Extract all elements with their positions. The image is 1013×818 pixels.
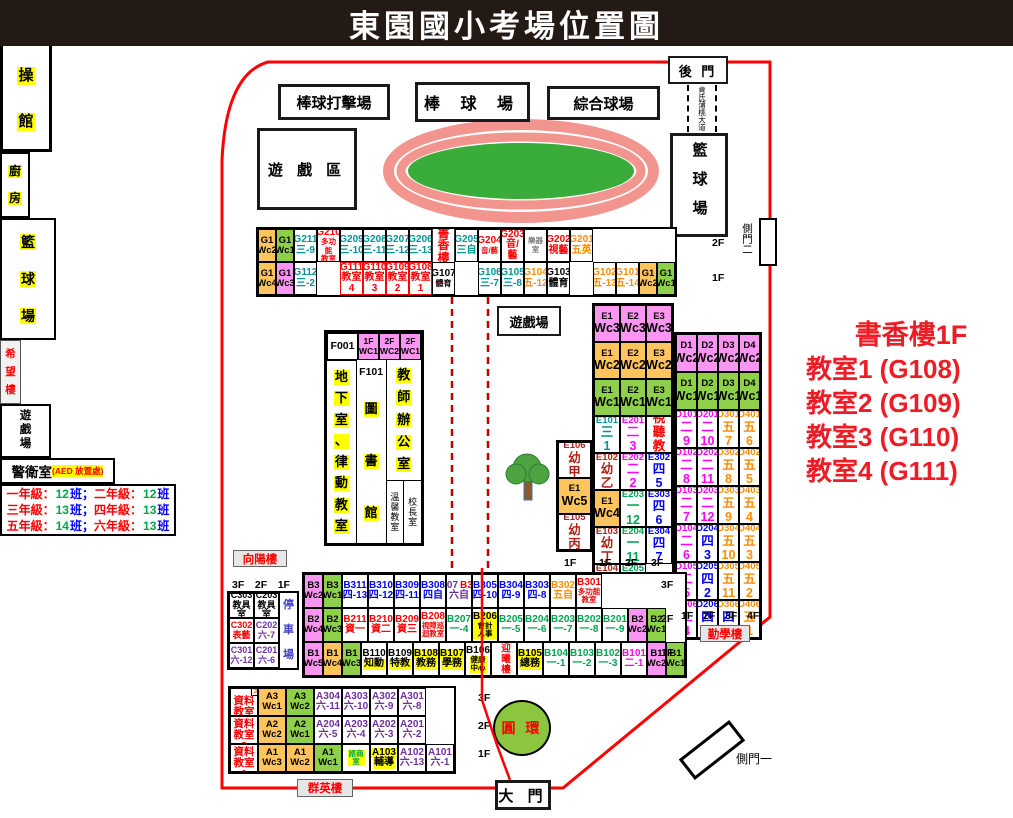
room-d403: D403五 4 xyxy=(739,486,760,524)
room-d302: D302五 8 xyxy=(718,448,739,486)
room-g201: G201五英 xyxy=(570,229,593,262)
guard-room-label: 警衛室 xyxy=(12,461,53,481)
room-d1: D1Wc2 xyxy=(676,334,697,372)
qunying-building-label: 群英樓 xyxy=(297,779,353,797)
room-b108: B108教務 xyxy=(413,642,439,676)
room-b202: B202一-8 xyxy=(576,608,602,642)
room-g211: G211三-9 xyxy=(294,229,317,262)
room-d2: D2Wc1 xyxy=(697,372,718,410)
room-a201: A201六-2 xyxy=(398,716,426,744)
room-g208: G208三-11 xyxy=(363,229,386,262)
room-e201: E201二 3 xyxy=(620,416,646,453)
b-building-2f-row: B2Wc4B2Wc3B211資一B210資二B209資三B208視障巡 迴教室B… xyxy=(304,608,685,642)
d-floor-3f: 3F xyxy=(725,610,737,622)
room-g209: G209三-10 xyxy=(340,229,363,262)
running-track xyxy=(389,125,653,217)
room-e2: E2Wc3 xyxy=(620,305,646,342)
c-floor-2f: 2F xyxy=(255,579,267,591)
hope-building-label: 希望樓 xyxy=(0,340,21,404)
room-a104: A104資料教室 1 xyxy=(230,744,258,772)
room-a302: A302六-9 xyxy=(370,688,398,716)
cell xyxy=(455,262,478,295)
room-a1: A1Wc1 xyxy=(314,744,342,772)
room-b2: B2Wc4 xyxy=(304,608,323,642)
room-g206: G206三-13 xyxy=(409,229,432,262)
e-floor-3f: 3F xyxy=(651,557,663,569)
c-row: C301六-12C201六-6 xyxy=(229,643,279,668)
room-b303: B303四-8 xyxy=(524,574,550,608)
room-d4: D4Wc1 xyxy=(739,372,760,410)
a-building-3f-row: A305六英資料教室 3A3Wc1A3Wc2A304六-11A303六-10A3… xyxy=(230,688,454,716)
side-gate-2 xyxy=(759,218,777,266)
room-c202: C202六-7 xyxy=(254,618,279,643)
cell xyxy=(317,262,340,295)
room-a102: A102六-13 xyxy=(398,744,426,772)
d-floor-4f: 4F xyxy=(747,610,759,622)
roundabout: 圓 環 xyxy=(493,700,551,756)
kitchen: 廚房 xyxy=(0,152,30,218)
f-wc-2f-wc1: 2F WC1 xyxy=(400,333,421,360)
room-a304: A304六-11 xyxy=(314,688,342,716)
cell xyxy=(593,229,616,262)
room-c301: C301六-12 xyxy=(229,643,254,668)
room-b310: B310四-12 xyxy=(368,574,394,608)
room-e203: E203一 12 xyxy=(620,490,646,527)
room-a202: A202六-3 xyxy=(370,716,398,744)
room-c303: C303教具 室 xyxy=(229,593,254,618)
e-building-west-wing: E106幼 甲E1Wc5E105幼 丙 xyxy=(556,440,593,552)
batting-field: 棒球打擊場 xyxy=(278,84,390,120)
exam-room-legend: 書香樓1F 教室1 (G108) 教室2 (G109) 教室3 (G110) 教… xyxy=(806,318,1013,488)
back-gate: 後 門 xyxy=(668,56,728,84)
a-floor-1f: 1F xyxy=(478,748,490,760)
room-e1: E1Wc1 xyxy=(594,379,620,416)
side-gate-2-label: 側門二 xyxy=(740,223,755,255)
room-e101: E101三 1 xyxy=(594,416,620,453)
room-b1: B1Wc4 xyxy=(323,642,342,676)
room-b2: B2Wc3 xyxy=(323,608,342,642)
cell xyxy=(602,574,628,608)
side-gate-1-label: 側門一 xyxy=(736,750,772,767)
room-b107: B107學務 xyxy=(439,642,465,676)
d-building-col-d4: D4Wc2D4Wc1D401五 6D402五 5D403五 4D404五 3D4… xyxy=(739,334,760,638)
room-g101: G101五-14 xyxy=(616,262,639,295)
principal-office: 校長室 xyxy=(403,481,421,543)
legend-line: 書香樓1F xyxy=(806,318,1013,352)
room-b102: B102一-3 xyxy=(595,642,621,676)
room-a3: A3Wc2 xyxy=(286,688,314,716)
room-b208: B208視障巡 迴教室 xyxy=(420,608,446,642)
xiangyang-building-label: 向陽樓 xyxy=(233,550,287,567)
room-e3: E3Wc2 xyxy=(646,342,672,379)
room-d102: D102二 8 xyxy=(676,448,697,486)
room-e303: E303四 6 xyxy=(646,490,672,527)
legend-line: 教室1 (G108) xyxy=(806,352,1013,386)
room-b3: B3Wc1 xyxy=(323,574,342,608)
a-building-2f-row: A205資料教室 2A2Wc2A2Wc1A204六-5A203六-4A202六-… xyxy=(230,716,454,744)
exit-arrow-icon: ← xyxy=(434,272,451,289)
b-floor-1f: 1F xyxy=(661,647,673,659)
class-count-line: 三年級：13班；四年級：13班 xyxy=(7,503,170,517)
playfield-bottom: 遊戲場 xyxy=(0,404,51,458)
room-b201: B201一-9 xyxy=(602,608,628,642)
room-e301: E301視 聽 教 室 xyxy=(646,416,672,453)
room-g112: G112三-2 xyxy=(294,262,317,295)
room-d303: D303五 9 xyxy=(718,486,739,524)
room-g202: G202視藝 xyxy=(547,229,570,262)
room-d401: D401五 6 xyxy=(739,410,760,448)
room-d203: D203二 12 xyxy=(697,486,718,524)
d-building-col-d3: D3Wc2D3Wc1D301五 7D302五 8D303五 9D304五 10D… xyxy=(718,334,739,638)
room-d3: D3Wc1 xyxy=(718,372,739,410)
room-g108: G108教室1 xyxy=(409,262,432,295)
basement-rhythm-room: 地下室、律動教室 xyxy=(327,360,357,543)
yingxi-label: 迎曦樓 xyxy=(491,642,517,676)
room-a103: A103輔導 xyxy=(370,744,398,772)
room-b203: B203一-7 xyxy=(550,608,576,642)
room-e102: E102幼 乙 xyxy=(594,453,620,490)
room-b3: B3Wc2 xyxy=(304,574,323,608)
room-g1: G1Wc2 xyxy=(639,262,657,295)
e-floor-1f-west: 1F xyxy=(564,557,576,569)
room-c302: C302表藝 xyxy=(229,618,254,643)
c-building-floor-header: 3F 2F 1F xyxy=(227,579,295,591)
e-floor-1f: 1F xyxy=(599,557,611,569)
play-area: 遊 戲 區 xyxy=(257,128,357,210)
f-wc-2f-wc2: 2F WC2 xyxy=(379,333,400,360)
room-b301: B301多功能 教室 xyxy=(576,574,602,608)
room-e105: E105幼 丙 xyxy=(558,514,591,550)
room-g105: G105三-8 xyxy=(501,262,524,295)
e-floor-2f: 2F xyxy=(625,557,637,569)
room-b304: B304四-9 xyxy=(498,574,524,608)
b-building: B3Wc2B3Wc1B311四-13B310四-12B309四-11B308四自… xyxy=(302,572,687,678)
room-d3: D3Wc2 xyxy=(718,334,739,372)
c-row: C303教具 室C203教具 室 xyxy=(229,593,279,618)
g-floor-2f: 2F xyxy=(712,237,724,249)
d-floor-1f: 1F xyxy=(681,610,693,622)
room-b207: B207一-4 xyxy=(446,608,472,642)
room-b206: B206會計人事 xyxy=(472,608,498,642)
playfield-top: 遊戲場 xyxy=(497,306,561,336)
room-d205: D205四 2 xyxy=(697,562,718,600)
room-a303: A303六-10 xyxy=(342,688,370,716)
room-a101: A101六-1 xyxy=(426,744,454,772)
room-a203: A203六-4 xyxy=(342,716,370,744)
room-c203: C203教具 室 xyxy=(254,593,279,618)
room-b103: B103一-2 xyxy=(569,642,595,676)
g-building-1f-row: G1Wc4G1Wc3G112三-2G111教室4G110教室3G109教室2G1… xyxy=(258,262,675,295)
room-e1: E1Wc5 xyxy=(558,478,591,514)
room-e1: E1Wc2 xyxy=(594,342,620,379)
b-floor-3f: 3F xyxy=(661,579,673,591)
room-g205: G205三自 xyxy=(455,229,478,262)
room-g204: G204音/藝 xyxy=(478,229,501,262)
room-g210: G210多功能 教室 xyxy=(317,229,340,262)
room-e3: E3Wc3 xyxy=(646,305,672,342)
room-g1: G1Wc4 xyxy=(258,262,276,295)
room-b110: B110知動 xyxy=(361,642,387,676)
room-g1: G1Wc2 xyxy=(258,229,276,262)
room-b204: B204一-6 xyxy=(524,608,550,642)
room-d204: D204四 3 xyxy=(697,524,718,562)
c-row: C302表藝C202六-7 xyxy=(229,618,279,643)
room-g107: G107體育← xyxy=(432,262,455,295)
aed-location-note: (AED 放置處) xyxy=(52,465,103,477)
room-b309: B309四-11 xyxy=(394,574,420,608)
room-b305: B305四-10 xyxy=(472,574,498,608)
room-b101: B101二-1 xyxy=(621,642,647,676)
g-floor-1f: 1F xyxy=(712,272,724,284)
class-count-line: 五年級：14班；六年級：13班 xyxy=(7,519,170,533)
a-floor-3f: 3F xyxy=(478,692,490,704)
room-b109: B109特教 xyxy=(387,642,413,676)
a-building: A305六英資料教室 3A3Wc1A3Wc2A304六-11A303六-10A3… xyxy=(228,686,456,774)
qinxue-building-label: 勤學樓 xyxy=(700,625,750,642)
f-building-top-row: F001 1F WC1 2F WC2 2F WC1 xyxy=(327,333,421,360)
a-floor-2f: 2F xyxy=(478,720,490,732)
room-g109: G109教室2 xyxy=(386,262,409,295)
room-d304: D304五 10 xyxy=(718,524,739,562)
room-g102: G102五-13 xyxy=(593,262,616,295)
room-a305: A305六英資料教室 3 xyxy=(230,688,258,716)
shuxiang-label: 書香樓 xyxy=(432,229,455,262)
tree-avenue: 肯氏蒲桃大道 xyxy=(687,85,717,132)
room-b1: B1Wc5 xyxy=(304,642,323,676)
room-d2: D2Wc2 xyxy=(697,334,718,372)
room-b2: B2Wc2 xyxy=(628,608,647,642)
main-gate: 大 門 xyxy=(495,780,551,810)
room-d405: D405五 2 xyxy=(739,562,760,600)
c-building: C303教具 室C203教具 室 C302表藝C202六-7 C301六-12C… xyxy=(227,591,299,670)
parking-lot-label: 停車場 xyxy=(279,593,297,668)
basketball-court-ne: 籃球場 xyxy=(670,133,728,237)
page-title: 東園國小考場位置圖 xyxy=(0,0,1013,46)
room-e1: E1Wc4 xyxy=(594,490,620,527)
room-d104: D104二 6 xyxy=(676,524,697,562)
room-a301: A301六-8 xyxy=(398,688,426,716)
room-g103: G103體育 xyxy=(547,262,570,295)
f-building: F001 1F WC1 2F WC2 2F WC1 地下室、律動教室 F101 … xyxy=(324,330,424,546)
room-a204: A204六-5 xyxy=(314,716,342,744)
room-d101: D101二 9 xyxy=(676,410,697,448)
room-b105: B105總務 xyxy=(517,642,543,676)
room-d202: D202二 11 xyxy=(697,448,718,486)
class-count-legend: 一年級：12班；二年級：12班三年級：13班；四年級：13班五年級：14班；六年… xyxy=(0,484,176,536)
room-d404: D404五 3 xyxy=(739,524,760,562)
room-e302: E302四 5 xyxy=(646,453,672,490)
room-a2: A2Wc1 xyxy=(286,716,314,744)
room-b307: B307B306六自 xyxy=(446,574,472,608)
room-b205: B205一-5 xyxy=(498,608,524,642)
basketball-court-mid: 籃球場 xyxy=(0,218,56,340)
b-building-1f-row: B1Wc5B1Wc4B1Wc3B110知動B109特教B108教務B107學務B… xyxy=(304,642,685,676)
c-building-rooms: C303教具 室C203教具 室 C302表藝C202六-7 C301六-12C… xyxy=(229,593,279,668)
room-b311: B311四-13 xyxy=(342,574,368,608)
c-floor-1f: 1F xyxy=(278,579,290,591)
room-b308: B308四自 xyxy=(420,574,446,608)
room-g110: G110教室3 xyxy=(363,262,386,295)
room-b210: B210資二 xyxy=(368,608,394,642)
room-b104: B104一-1 xyxy=(543,642,569,676)
room-e3: E3Wc1 xyxy=(646,379,672,416)
room-e2: E2Wc2 xyxy=(620,342,646,379)
room-b209: B209資三 xyxy=(394,608,420,642)
warm-classroom: 溫馨教室 xyxy=(387,481,404,543)
legend-line: 教室4 (G111) xyxy=(806,454,1013,488)
teacher-office: 教師辦公室 溫馨教室 校長室 xyxy=(387,360,422,543)
room-g207: G207三-12 xyxy=(386,229,409,262)
room-f001: F001 xyxy=(327,333,358,360)
class-count-line: 一年級：12班；二年級：12班 xyxy=(7,487,170,501)
room-g106: G106三-7 xyxy=(478,262,501,295)
b-floor-2f: 2F xyxy=(661,613,673,625)
d-building-col-d2: D2Wc2D2Wc1D201二 10D202二 11D203二 12D204四 … xyxy=(697,334,718,638)
instrument-room: 樂器 室 xyxy=(524,229,547,262)
room-d402: D402五 5 xyxy=(739,448,760,486)
room-b302: B302五自 xyxy=(550,574,576,608)
room-d201: D201二 10 xyxy=(697,410,718,448)
f-wc-1f-wc1: 1F WC1 xyxy=(358,333,379,360)
room-e106: E106幼 甲 xyxy=(558,442,591,478)
counseling-room: 諮商 室 xyxy=(342,744,370,772)
legend-line: 教室3 (G110) xyxy=(806,420,1013,454)
room-e1: E1Wc3 xyxy=(594,305,620,342)
c-floor-3f: 3F xyxy=(232,579,244,591)
g-building: G1Wc2G1Wc1G211三-9G210多功能 教室G209三-10G208三… xyxy=(256,227,677,297)
room-g104: G104五-12 xyxy=(524,262,547,295)
room-g1: G1Wc3 xyxy=(276,262,294,295)
legend-line: 教室2 (G109) xyxy=(806,386,1013,420)
d-building: D1Wc2D1Wc1D101二 9D102二 8D103二 7D104二 6D1… xyxy=(674,332,762,640)
b-building-3f-row: B3Wc2B3Wc1B311四-13B310四-12B309四-11B308四自… xyxy=(304,574,685,608)
room-c201: C201六-6 xyxy=(254,643,279,668)
room-e202: E202二 2 xyxy=(620,453,646,490)
room-a1: A1Wc2 xyxy=(286,744,314,772)
guard-room: 警衛室 (AED 放置處) xyxy=(0,458,115,484)
room-a1: A1Wc3 xyxy=(258,744,286,772)
room-d1: D1Wc1 xyxy=(676,372,697,410)
room-b106: B106健康 中心 xyxy=(465,642,491,676)
room-a205: A205資料教室 2 xyxy=(230,716,258,744)
room-d301: D301五 7 xyxy=(718,410,739,448)
baseball-field: 棒 球 場 xyxy=(415,82,530,122)
room-d103: D103二 7 xyxy=(676,486,697,524)
room-g1: G1Wc1 xyxy=(657,262,675,295)
room-b1: B1Wc3 xyxy=(342,642,361,676)
a-building-1f-row: A104資料教室 1A1Wc3A1Wc2A1Wc1諮商 室A103輔導A102六… xyxy=(230,744,454,772)
room-b211: B211資一 xyxy=(342,608,368,642)
library: F101 圖書館 xyxy=(357,360,387,543)
room-a3: A3Wc1 xyxy=(258,688,286,716)
room-d4: D4Wc2 xyxy=(739,334,760,372)
cell xyxy=(570,262,593,295)
room-d305: D305五 11 xyxy=(718,562,739,600)
room-e2: E2Wc1 xyxy=(620,379,646,416)
room-g203: G203音/藝 xyxy=(501,229,524,262)
g-building-2f-row: G1Wc2G1Wc1G211三-9G210多功能 教室G209三-10G208三… xyxy=(258,229,675,262)
multi-sport-court: 綜合球場 xyxy=(547,86,660,120)
campus-map: 東園國小考場位置圖 棒球打擊場 棒 球 場 綜合球場 遊 戲 區 籃球場 後 門… xyxy=(0,0,1013,818)
tree-icon xyxy=(506,454,549,500)
d-floor-2f: 2F xyxy=(703,610,715,622)
room-g1: G1Wc1 xyxy=(276,229,294,262)
room-g111: G111教室4 xyxy=(340,262,363,295)
room-a2: A2Wc2 xyxy=(258,716,286,744)
